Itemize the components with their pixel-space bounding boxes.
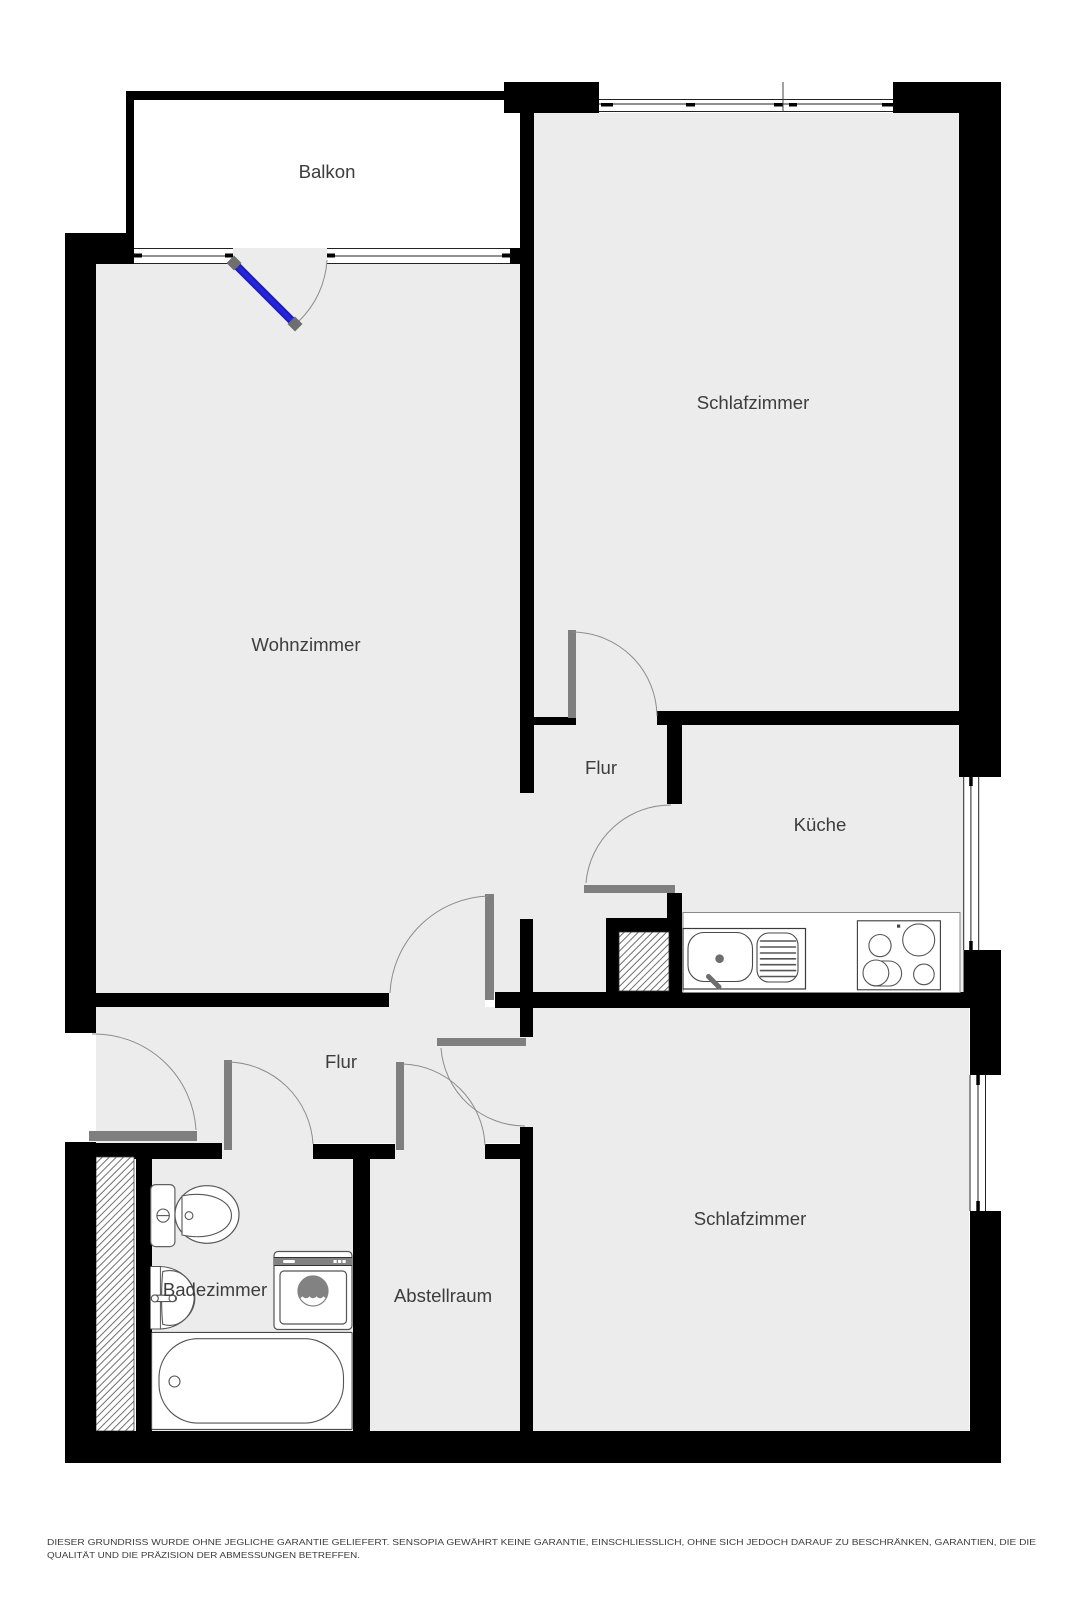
svg-text:Schlafzimmer: Schlafzimmer xyxy=(697,392,810,413)
svg-text:QUALITÄT UND DIE PRÄZISION DER: QUALITÄT UND DIE PRÄZISION DER ABMESSUNG… xyxy=(47,1550,360,1560)
svg-text:Schlafzimmer: Schlafzimmer xyxy=(694,1208,807,1229)
svg-text:Flur: Flur xyxy=(325,1051,357,1072)
svg-text:Küche: Küche xyxy=(794,814,847,835)
svg-text:Balkon: Balkon xyxy=(299,161,356,182)
svg-text:DIESER GRUNDRISS WURDE OHNE JE: DIESER GRUNDRISS WURDE OHNE JEGLICHE GAR… xyxy=(47,1537,1036,1547)
svg-text:Badezimmer: Badezimmer xyxy=(163,1279,267,1300)
svg-text:Abstellraum: Abstellraum xyxy=(394,1285,492,1306)
svg-text:Wohnzimmer: Wohnzimmer xyxy=(251,634,360,655)
svg-text:Flur: Flur xyxy=(585,757,617,778)
